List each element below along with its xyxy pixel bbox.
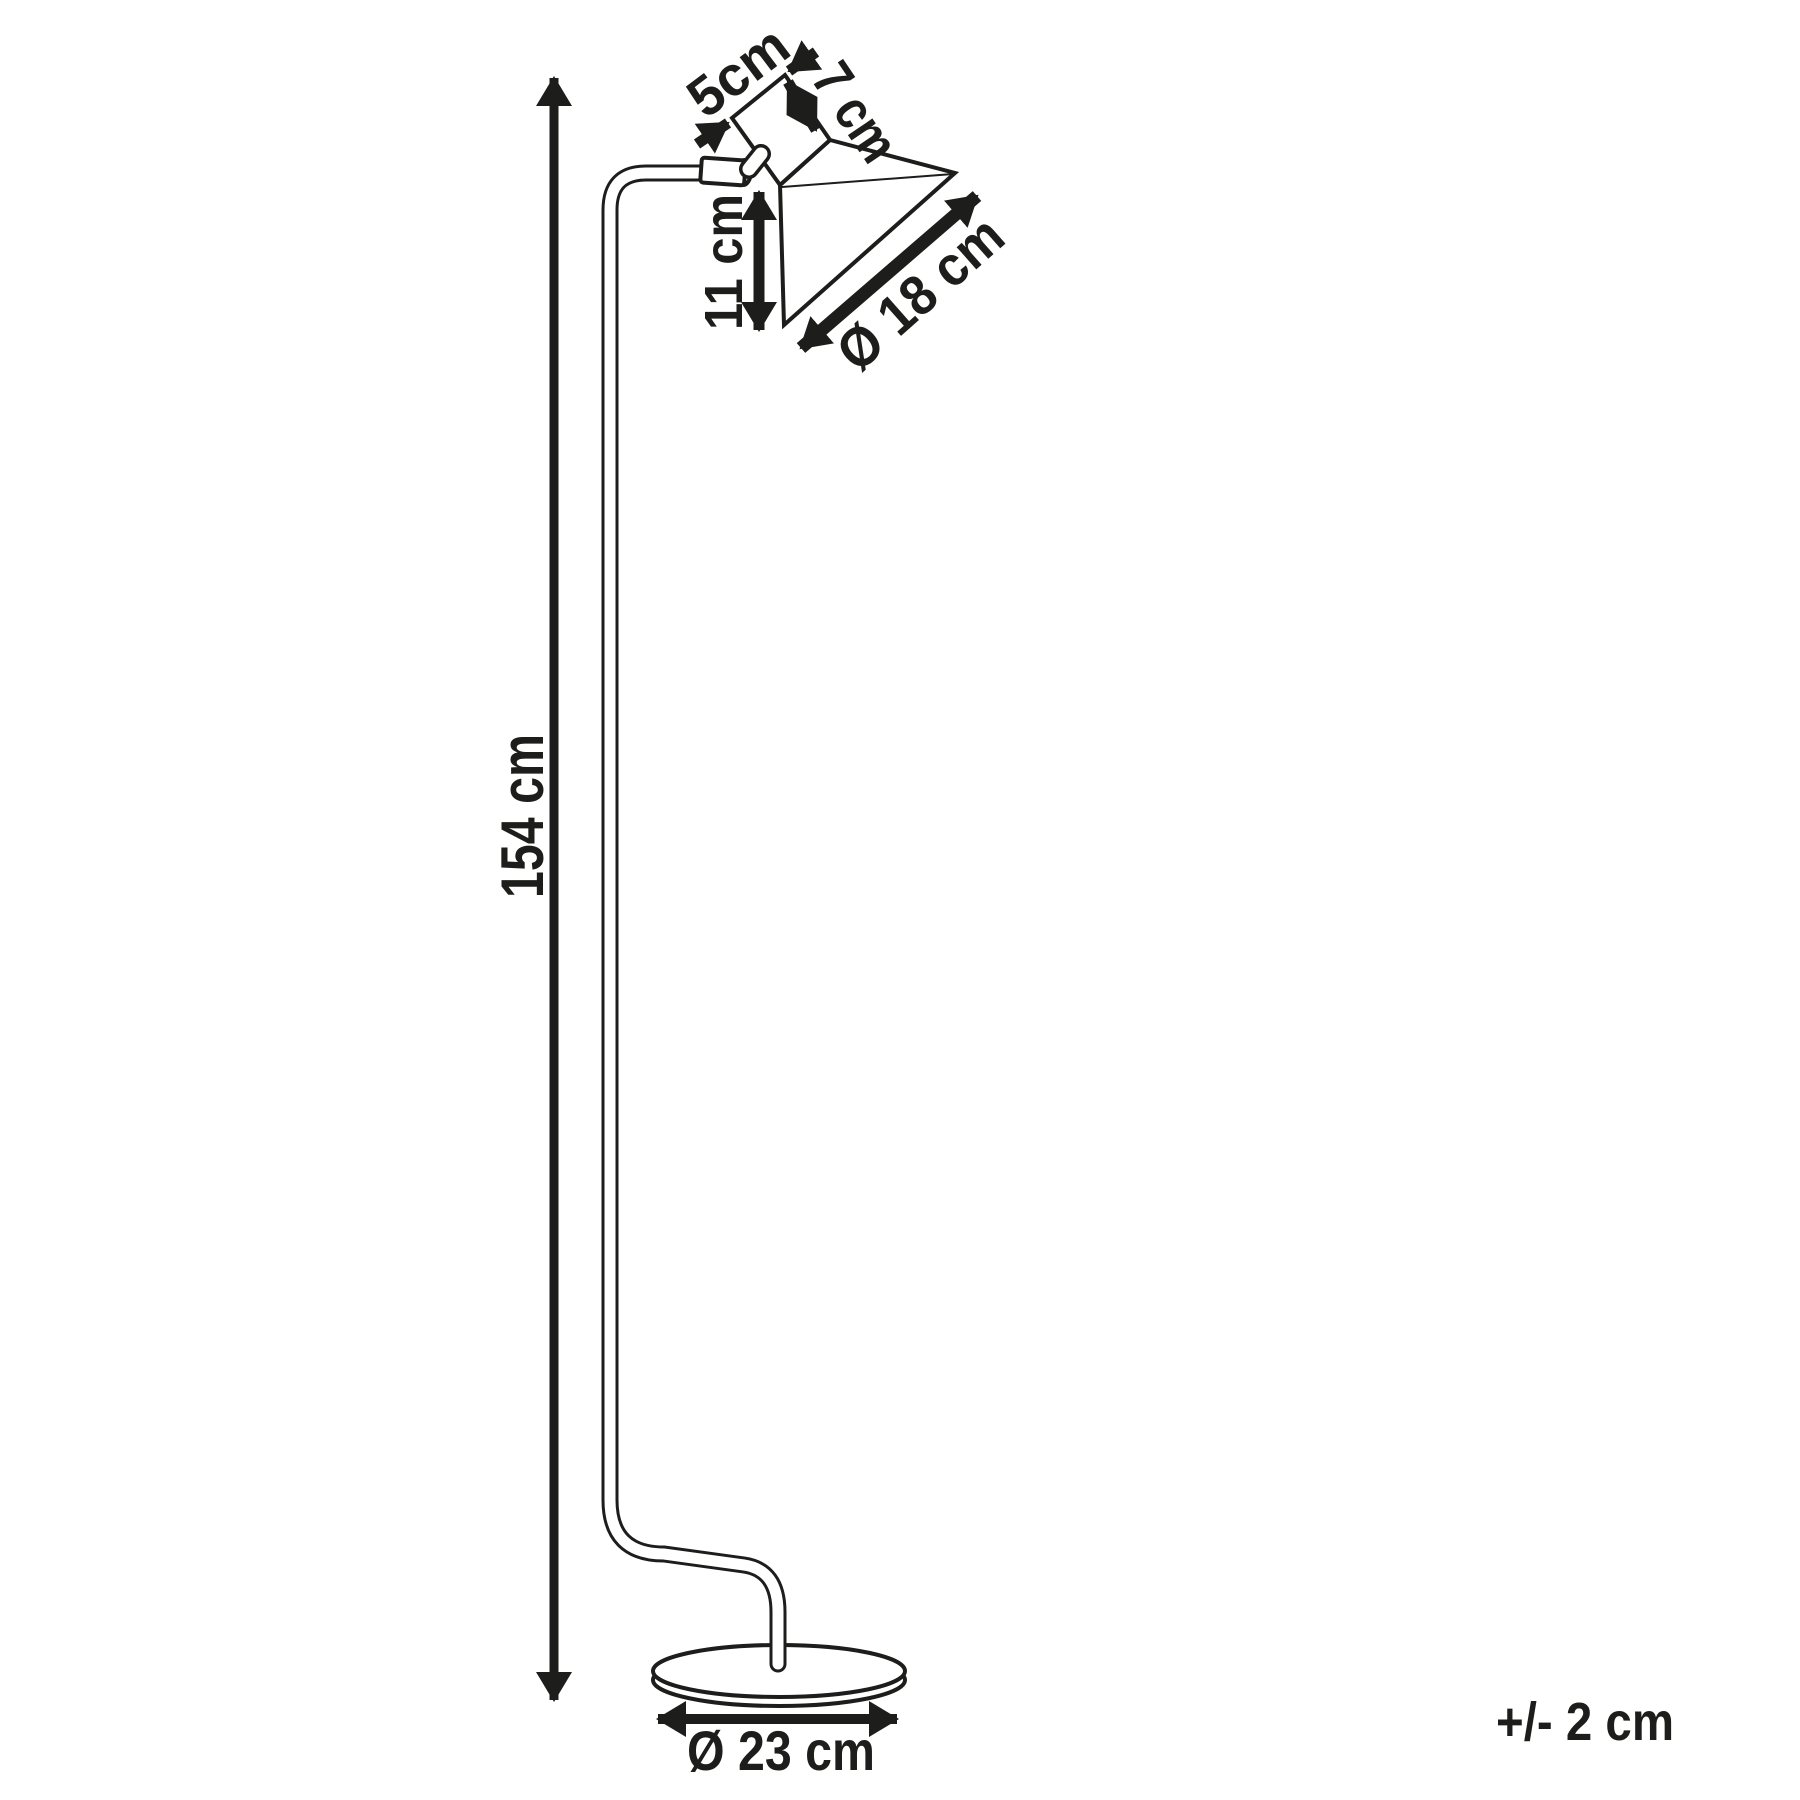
- label-lamp-height: 154 cm: [489, 734, 556, 898]
- connector-body: [700, 157, 746, 185]
- label-tolerance: +/- 2 cm: [1496, 1692, 1674, 1752]
- lamp-pole-outer: [610, 173, 778, 1664]
- floor-lamp-dimension-diagram: 154 cm 5cm 7 cm 11 cm Ø 18 cm Ø 23 cm +/…: [0, 0, 1800, 1800]
- label-shade-height: 11 cm: [694, 194, 754, 330]
- label-base-diameter: Ø 23 cm: [687, 1719, 875, 1782]
- diagram-canvas: 154 cm 5cm 7 cm 11 cm Ø 18 cm Ø 23 cm +/…: [0, 0, 1800, 1800]
- lamp-pole-inner: [610, 173, 778, 1664]
